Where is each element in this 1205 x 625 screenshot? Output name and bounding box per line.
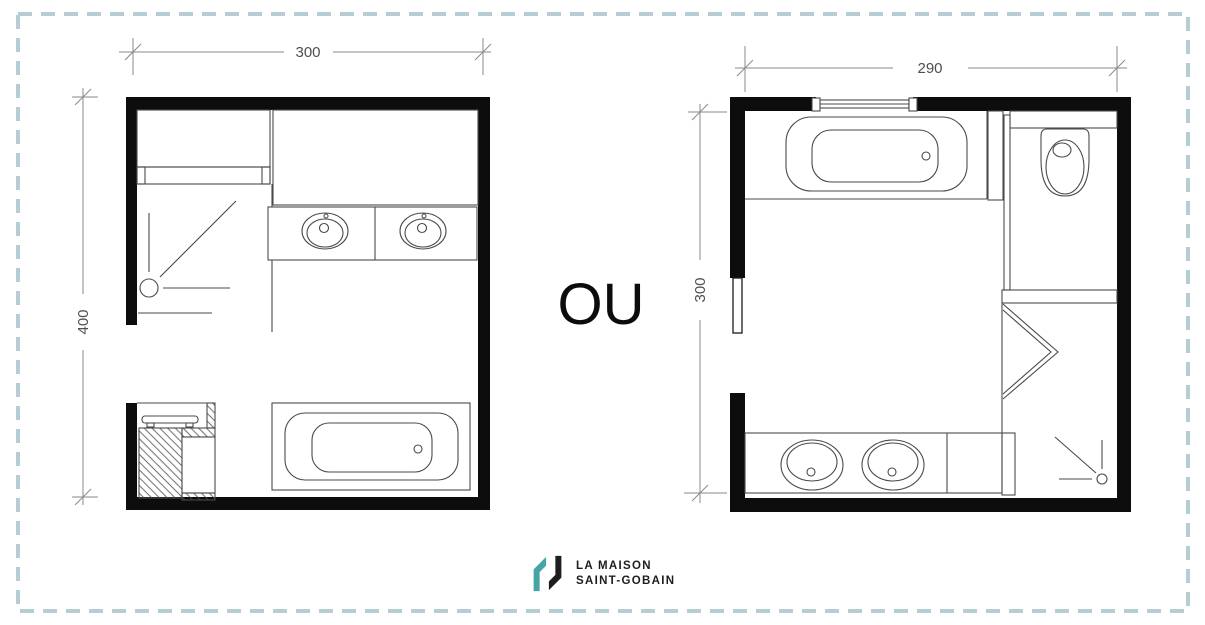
toilet-icon — [1041, 129, 1089, 196]
towel-radiator — [142, 416, 198, 427]
washbasin-icon — [400, 213, 446, 249]
washbasin-icon — [862, 440, 924, 490]
bathtub — [272, 403, 470, 490]
corner-shower — [138, 184, 272, 332]
window — [812, 98, 917, 111]
washbasin-icon — [302, 213, 348, 249]
dim-width-label: 300 — [295, 44, 320, 61]
shower-drain-icon — [1055, 437, 1107, 484]
dim-height-label: 400 — [75, 309, 92, 334]
brand-logo-text: LA MAISON SAINT-GOBAIN — [576, 559, 675, 588]
floor-plan-left: 300 400 — [60, 30, 510, 530]
corner-shower — [1002, 290, 1117, 495]
walls-right — [730, 97, 1131, 512]
poster: 300 400 — [0, 0, 1205, 625]
bathtub — [745, 111, 987, 199]
logo-line1: LA MAISON — [576, 559, 675, 573]
toilet-compartment — [988, 111, 1117, 290]
dim-height-label: 300 — [692, 277, 709, 302]
entry-door-leaf — [733, 278, 742, 333]
cabinet-niche — [137, 403, 215, 500]
double-washbasin-vanity — [268, 207, 477, 260]
dimension-lines-right: 290 300 — [684, 46, 1127, 503]
separator-label: OU — [545, 276, 657, 334]
house-icon — [529, 553, 566, 594]
double-washbasin-vanity — [745, 433, 1002, 493]
brand-logo: LA MAISON SAINT-GOBAIN — [529, 553, 675, 594]
dim-width-label: 290 — [917, 60, 942, 77]
sliding-partition — [1004, 115, 1010, 290]
logo-line2: SAINT-GOBAIN — [576, 574, 675, 588]
washbasin-icon — [781, 440, 843, 490]
hatched-storage-zone — [137, 110, 478, 205]
floor-plan-right: 290 300 — [665, 40, 1155, 525]
